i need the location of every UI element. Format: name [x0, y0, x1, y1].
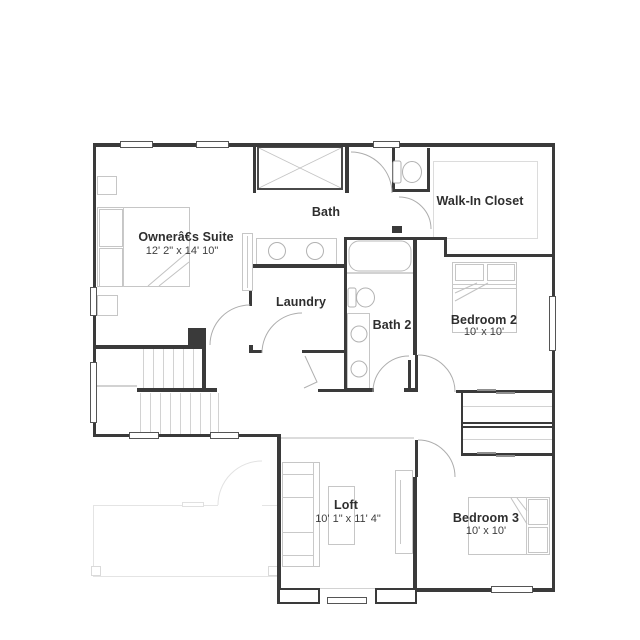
bedroom3-bed-line: [526, 497, 527, 555]
owner-bed-line: [123, 207, 124, 287]
stair-tread: [153, 349, 154, 388]
room-label-bath: Bath: [312, 205, 340, 219]
room-label-loft: Loft: [334, 498, 358, 512]
wall-laundry-top: [253, 264, 347, 268]
bedroom3-door-leaf: [415, 440, 418, 477]
wall-laundry-bottom: [302, 350, 347, 353]
room-dim-bedroom3: 10' x 10': [466, 525, 506, 537]
linen-cabinet-line: [247, 236, 248, 288]
closet-slider: [477, 452, 496, 454]
window: [210, 432, 239, 439]
stair-tread: [210, 393, 211, 434]
stair-tread: [200, 393, 201, 434]
bath-vanity: [256, 238, 337, 265]
wall-bedroom2-top: [444, 254, 555, 257]
stair-tread: [173, 349, 174, 388]
window: [491, 586, 533, 593]
tv-line: [400, 480, 401, 544]
stair-tread: [160, 393, 161, 434]
room-label-walk-in-closet: Walk-In Closet: [436, 194, 523, 208]
wall-bath2-right: [413, 237, 417, 355]
linen-door: [304, 356, 317, 388]
wall-closet-bottom: [345, 237, 447, 240]
hall-break-line: [281, 437, 414, 439]
lower-floor-window: [182, 502, 204, 507]
closet-rod: [463, 439, 552, 440]
lower-floor-door-arc: [218, 461, 262, 505]
door-arc: [210, 152, 455, 477]
wall-closet-divider: [461, 426, 555, 428]
wall-toilet-room: [427, 148, 430, 192]
window: [90, 362, 97, 423]
stair-rail: [137, 388, 217, 392]
wall-exterior-right: [552, 143, 555, 592]
room-dim-owners-suite: 12' 2" x 14' 10": [146, 245, 219, 257]
wall-toilet-room: [392, 189, 430, 192]
tv-console: [395, 470, 413, 554]
shower-stall: [257, 146, 343, 190]
tub-deck-line: [347, 272, 413, 274]
loft-sofa-line: [282, 497, 314, 498]
wall-exterior-top: [93, 143, 555, 147]
stair-tread: [150, 393, 151, 434]
room-label-owners-suite: Ownerâ€͸s Suite: [138, 230, 233, 244]
owner-bed-pillow: [99, 209, 123, 247]
wall-exterior-bottom-left: [93, 434, 281, 437]
stair-landing-line: [93, 385, 137, 387]
bathtub-icon: [349, 241, 411, 271]
stair-tread: [218, 393, 219, 434]
wall-closet-divider: [461, 422, 555, 424]
nightstand: [97, 176, 117, 195]
bedroom2-bed-line: [452, 288, 517, 289]
room-label-bedroom2: Bedroom 2: [451, 313, 517, 327]
window: [373, 141, 400, 148]
closet-rod: [463, 406, 552, 407]
toilet-icon: [348, 161, 422, 307]
lower-floor-post: [91, 566, 101, 576]
floor-plan: Ownerâ€͸s Suite 12' 2" x 14' 10" Bath Wa…: [0, 0, 640, 640]
stair-tread: [170, 393, 171, 434]
wall-bath2-bottom: [346, 388, 374, 392]
bedroom3-bed-pillow: [528, 527, 548, 553]
loft-sofa-line: [313, 462, 314, 567]
closet-slider: [477, 389, 496, 391]
stair-tread: [183, 349, 184, 388]
window: [90, 287, 97, 316]
bedroom2-bed-line: [452, 284, 517, 285]
room-label-bedroom3: Bedroom 3: [453, 511, 519, 525]
stair-tread: [180, 393, 181, 434]
window: [327, 597, 367, 604]
loft-sofa-line: [282, 474, 314, 475]
wall-bedroom3-bottom: [414, 588, 555, 592]
loft-sofa-line: [282, 532, 314, 533]
bay-wall: [375, 588, 417, 604]
closet-slider: [496, 455, 515, 457]
bay-break-line: [320, 588, 375, 589]
wall-loft-west: [277, 434, 281, 604]
stair-tread: [193, 349, 194, 388]
closet-slider: [496, 392, 515, 394]
stair-tread: [190, 393, 191, 434]
wall-toilet-room: [392, 148, 395, 192]
bedroom2-bed-pillow: [487, 264, 515, 281]
wall-closet-door-stub: [392, 226, 402, 233]
room-label-laundry: Laundry: [276, 295, 326, 309]
bedroom2-door-leaf: [415, 355, 418, 392]
stair-tread: [143, 349, 144, 388]
wall-bedroom3-west: [413, 477, 417, 604]
stair-tread: [140, 393, 141, 434]
stair-post: [188, 328, 206, 345]
wall-suite-bottom: [93, 345, 206, 349]
stair-stringer: [202, 345, 206, 392]
window: [129, 432, 159, 439]
window: [196, 141, 229, 148]
bedroom2-bed-pillow: [455, 264, 484, 281]
nightstand: [97, 295, 118, 316]
wall-suite-east: [249, 291, 252, 306]
window: [549, 296, 556, 351]
bay-wall: [278, 588, 320, 604]
lower-floor-line: [262, 505, 278, 506]
stair-tread: [163, 349, 164, 388]
wall-bedroom2-jamb: [414, 340, 417, 355]
lower-floor-line: [93, 576, 278, 577]
wall-laundry-bottom: [252, 350, 262, 353]
room-label-bath2: Bath 2: [373, 318, 412, 332]
wall-shower-right: [345, 146, 349, 193]
wall-linen-bottom: [318, 389, 345, 392]
bath2-vanity: [347, 313, 370, 390]
loft-sofa-line: [282, 555, 314, 556]
room-dim-bedroom2: 10' x 10': [464, 326, 504, 338]
bath2-door-leaf: [408, 360, 411, 392]
owner-bed-pillow: [99, 248, 123, 287]
room-dim-loft: 10' 1" x 11' 4": [315, 513, 381, 525]
bedroom3-bed-pillow: [528, 499, 548, 525]
wall-bath2-left: [344, 237, 347, 392]
window: [120, 141, 153, 148]
wall-shower-left: [253, 145, 256, 193]
